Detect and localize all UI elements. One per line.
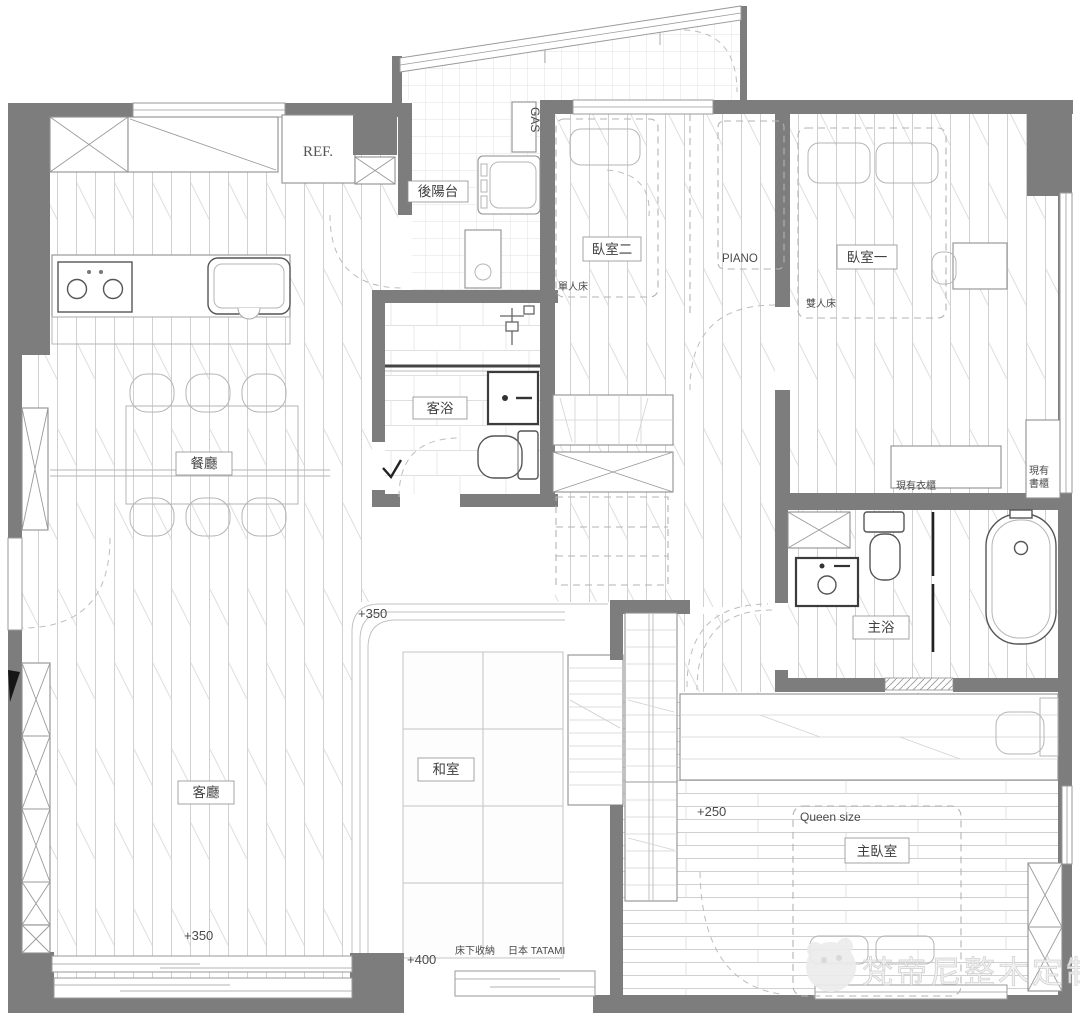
living-label: 客廳 — [178, 781, 234, 804]
svg-text:現有: 現有 — [1029, 464, 1049, 477]
window-tatami-bottom — [455, 971, 595, 996]
svg-text:書櫃: 書櫃 — [1029, 477, 1049, 490]
cabinet-x-small — [355, 157, 395, 184]
kitchen-sink — [208, 258, 290, 319]
floor-plan: REF. — [0, 0, 1080, 1021]
master-bath-label: 主浴 — [853, 616, 909, 639]
refrigerator: REF. — [282, 115, 355, 183]
svg-text:臥室一: 臥室一 — [847, 249, 888, 265]
bedroom2-cabinet-x — [553, 452, 673, 492]
japan-tatami-label: 日本 TATAMI — [508, 944, 565, 957]
mbath-sink — [796, 558, 858, 606]
hall-closet — [625, 613, 677, 901]
tatami-window-seat-cabinet — [568, 655, 623, 805]
floor-bedroom2-hall — [555, 114, 775, 607]
double-bed-label: 雙人床 — [806, 297, 836, 310]
mbath-toilet — [864, 512, 904, 580]
upper-cabinet-x — [50, 117, 128, 172]
window-bedroom1-right — [1060, 193, 1072, 493]
window-master-bedroom-right — [1062, 786, 1072, 864]
bath-sink — [488, 372, 538, 424]
under-bed-storage-label: 床下收納 — [455, 944, 495, 957]
hatched-wall — [885, 678, 953, 690]
queen-size-label: Queen size — [800, 810, 861, 824]
level-tatami: +400 — [407, 952, 436, 967]
svg-text:餐廳: 餐廳 — [191, 455, 218, 471]
svg-text:主臥室: 主臥室 — [857, 843, 898, 859]
svg-text:和室: 和室 — [433, 761, 460, 777]
dining-label: 餐廳 — [176, 452, 232, 475]
kitchen-pillar — [353, 115, 397, 155]
entry-cabinet-x-mid — [22, 408, 48, 530]
bedroom2-label: 臥室二 — [583, 237, 641, 261]
bedroom1-label: 臥室一 — [837, 245, 897, 269]
existing-wardrobe: 現有衣櫃 — [891, 446, 1001, 492]
window-kitchen-top — [133, 103, 285, 117]
brand-logo-icon — [806, 938, 856, 992]
washing-machine — [478, 156, 540, 214]
guest-bath-label: 客浴 — [413, 397, 467, 419]
brand-watermark-text: 梵帝尼整木定制 — [862, 955, 1080, 990]
floor-kitchen-dining-living — [22, 117, 372, 1000]
bedroom2-bookshelf — [553, 395, 673, 445]
piano-label: PIANO — [722, 253, 758, 265]
balcony-label: 後陽台 — [408, 181, 468, 202]
upper-cabinet-diagonal — [128, 117, 278, 172]
master-desk — [680, 694, 1058, 780]
gas-label: GAS — [528, 107, 542, 132]
toilet — [478, 431, 538, 479]
existing-wardrobe-label: 現有衣櫃 — [896, 479, 936, 492]
tatami-label: 和室 — [418, 758, 474, 781]
svg-text:臥室二: 臥室二 — [592, 241, 633, 257]
master-bedroom-label: 主臥室 — [845, 838, 909, 863]
window-bedroom2-top — [573, 100, 713, 114]
svg-text:客廳: 客廳 — [193, 784, 220, 800]
svg-text:客浴: 客浴 — [427, 400, 454, 416]
entry-door-opening — [8, 538, 22, 630]
level-tatami-entry: +350 — [358, 606, 387, 621]
balcony-sink — [465, 230, 501, 288]
ref-label: REF. — [303, 144, 333, 160]
tv-cabinet-x-column — [22, 663, 50, 953]
svg-text:主浴: 主浴 — [868, 620, 896, 635]
existing-bookcase: 現有 書櫃 — [1026, 420, 1060, 498]
bathtub — [986, 510, 1056, 644]
mbath-cabinet-x — [788, 512, 850, 548]
svg-text:後陽台: 後陽台 — [418, 184, 459, 199]
level-master-bedroom: +250 — [697, 804, 726, 819]
stove — [58, 262, 132, 312]
level-living: +350 — [184, 928, 213, 943]
single-bed-label: 單人床 — [558, 280, 588, 293]
